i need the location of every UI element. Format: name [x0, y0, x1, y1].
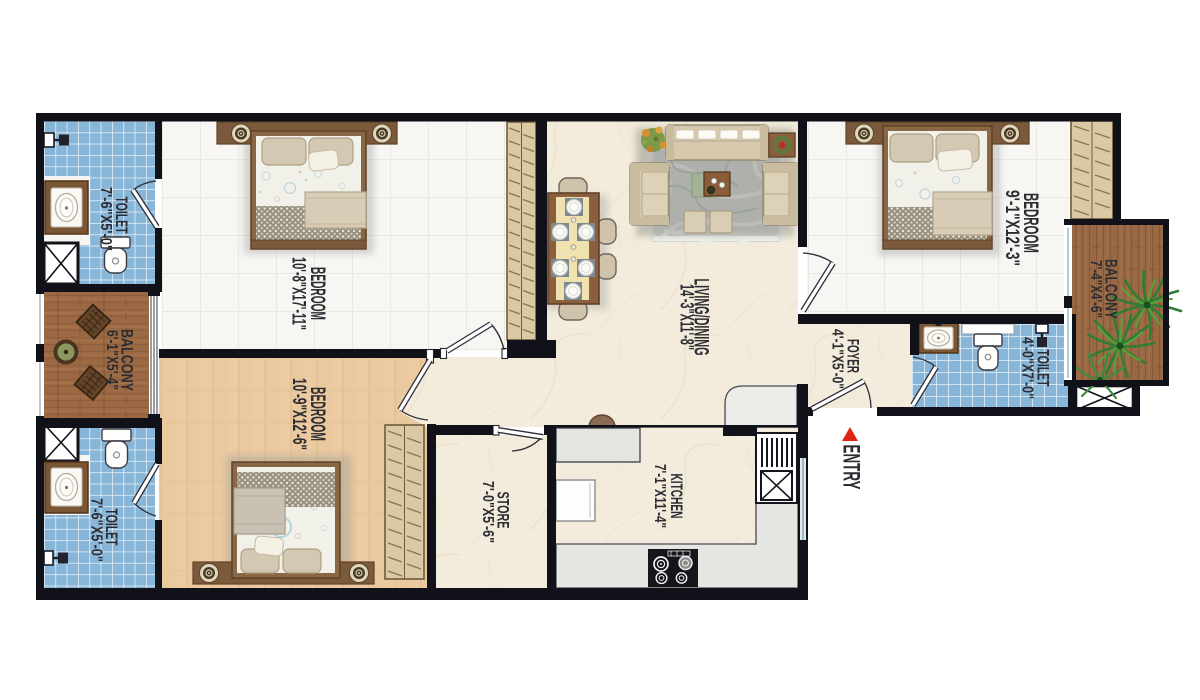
svg-text:4'-0"X7'-0": 4'-0"X7'-0"	[1019, 337, 1036, 399]
svg-text:7'-1"X11'-4": 7'-1"X11'-4"	[651, 464, 668, 528]
svg-text:7'-6"X5'-0": 7'-6"X5'-0"	[97, 187, 114, 251]
svg-text:10'-8"X17'-11": 10'-8"X17'-11"	[288, 257, 309, 330]
svg-text:14'-3"X11'-8": 14'-3"X11'-8"	[676, 284, 697, 350]
svg-text:KITCHEN: KITCHEN	[667, 474, 686, 519]
svg-text:10'-9"X12'-6": 10'-9"X12'-6"	[288, 378, 309, 450]
svg-text:7'-6"X5'-0": 7'-6"X5'-0"	[88, 498, 105, 562]
svg-text:7'-0"X5'-6": 7'-0"X5'-6"	[479, 481, 496, 543]
svg-text:7'-4"X4'-6": 7'-4"X4'-6"	[1087, 260, 1104, 318]
svg-text:4'-1"X5'-0": 4'-1"X5'-0"	[829, 329, 846, 389]
svg-text:ENTRY: ENTRY	[838, 445, 865, 490]
svg-text:6'-1"X5'-4": 6'-1"X5'-4"	[103, 330, 120, 390]
svg-text:9'-1"X12'-3": 9'-1"X12'-3"	[1001, 190, 1022, 266]
